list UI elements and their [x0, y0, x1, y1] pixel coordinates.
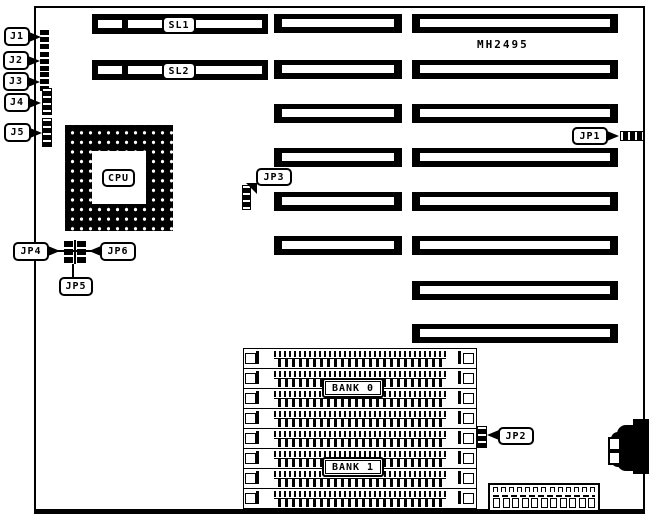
keyboard-connector-notch-1: [608, 437, 621, 451]
jumper-label-j4: J4: [4, 93, 30, 112]
power-tab: [566, 487, 571, 492]
jp5-connector-line: [72, 263, 74, 278]
jumper-label-jp5: JP5: [59, 277, 93, 296]
power-tab: [525, 487, 530, 492]
jumper-block-j4: [42, 88, 52, 115]
simm-contacts: [274, 478, 446, 487]
cpu-label: CPU: [102, 169, 135, 187]
simm-contacts: [274, 438, 446, 447]
simm-clip-left-square: [245, 433, 256, 444]
simm-clip-right-bar: [458, 411, 461, 424]
slot-strip: [282, 241, 394, 249]
simm-socket-8: [243, 488, 477, 509]
simm-pins: [274, 351, 446, 357]
slot-strip: [420, 286, 610, 294]
power-connector-tabs: [493, 487, 595, 493]
power-tab: [509, 487, 514, 492]
power-pin: [531, 498, 538, 508]
jumper-block-j1: [40, 30, 49, 49]
slot-label-sl2: SL2: [162, 62, 196, 80]
expansion-slot-right-4: [412, 148, 618, 167]
slot-strip: [282, 19, 394, 27]
power-tab: [550, 487, 555, 492]
pointer-jp3: [246, 183, 257, 194]
power-pin: [550, 498, 557, 508]
simm-clip-right-bar: [458, 351, 461, 364]
simm-clip-left-square: [245, 473, 256, 484]
expansion-slot-middle-1: [274, 14, 402, 33]
expansion-slot-right-3: [412, 104, 618, 123]
jumper-label-j5: J5: [4, 123, 31, 142]
jp456-pins-right: [77, 241, 86, 263]
power-pin: [503, 498, 510, 508]
power-pin: [579, 498, 586, 508]
simm-clip-right-bar: [458, 391, 461, 404]
bank1-label: BANK 1: [322, 457, 384, 477]
power-connector: [488, 483, 600, 512]
jumper-label-jp2: JP2: [498, 427, 534, 445]
jumper-label-jp3: JP3: [256, 168, 292, 186]
power-tab: [582, 487, 587, 492]
slot-strip: [420, 65, 610, 73]
pointer-jp1: [607, 131, 619, 141]
power-pin: [512, 498, 519, 508]
jumper-label-j1: J1: [4, 27, 30, 46]
jumper-label-jp1: JP1: [572, 127, 608, 145]
simm-contacts: [274, 398, 446, 407]
simm-clip-right-square: [463, 373, 474, 384]
expansion-slot-middle-2: [274, 60, 402, 79]
expansion-slot-middle-6: [274, 236, 402, 255]
pointer-jp4: [48, 246, 60, 256]
jp456-cross-h: [63, 250, 87, 252]
jumper-block-jp1: [620, 131, 644, 141]
simm-clip-right-bar: [458, 371, 461, 384]
slot-sl1-key: [122, 20, 128, 28]
slot-strip: [420, 19, 610, 27]
simm-clip-left-bar: [256, 411, 259, 424]
simm-clip-right-square: [463, 393, 474, 404]
jumper-block-jp2: [477, 426, 487, 448]
simm-pins: [274, 431, 446, 437]
power-tab: [533, 487, 538, 492]
simm-clip-left-square: [245, 493, 256, 504]
pointer-j2: [28, 56, 40, 66]
simm-clip-right-bar: [458, 491, 461, 504]
expansion-slot-right-8: [412, 324, 618, 343]
power-pin: [560, 498, 567, 508]
jumper-block-j5: [42, 118, 52, 147]
jumper-label-jp6: JP6: [100, 242, 136, 261]
simm-clip-left-square: [245, 373, 256, 384]
simm-clip-right-bar: [458, 431, 461, 444]
power-pin: [493, 498, 500, 508]
simm-clip-left-bar: [256, 391, 259, 404]
simm-clip-left-bar: [256, 431, 259, 444]
simm-clip-right-square: [463, 453, 474, 464]
simm-clip-left-bar: [256, 371, 259, 384]
jumper-label-jp4: JP4: [13, 242, 49, 261]
power-connector-pins: [493, 498, 595, 509]
simm-socket-4: [243, 408, 477, 429]
pointer-j1: [29, 32, 41, 42]
slot-strip: [420, 241, 610, 249]
slot-strip: [420, 329, 610, 337]
simm-clip-left-bar: [256, 351, 259, 364]
slot-label-sl1: SL1: [162, 16, 196, 34]
power-tab: [574, 487, 579, 492]
bank0-label: BANK 0: [322, 378, 384, 398]
simm-pins: [274, 371, 446, 377]
slot-strip: [420, 109, 610, 117]
simm-pins: [274, 411, 446, 417]
expansion-slot-right-1: [412, 14, 618, 33]
power-pin: [522, 498, 529, 508]
slot-strip: [282, 197, 394, 205]
expansion-slot-right-7: [412, 281, 618, 300]
jumper-label-j3: J3: [3, 72, 29, 91]
simm-clip-right-bar: [458, 451, 461, 464]
jp456-pins-left: [64, 241, 73, 263]
power-pin: [588, 498, 595, 508]
jumper-block-j2: [40, 52, 49, 71]
simm-clip-left-bar: [256, 471, 259, 484]
simm-contacts: [274, 358, 446, 367]
simm-clip-right-square: [463, 493, 474, 504]
slot-strip: [282, 65, 394, 73]
slot-strip: [282, 109, 394, 117]
simm-clip-right-square: [463, 353, 474, 364]
slot-sl2-key: [122, 66, 128, 74]
power-tab: [501, 487, 506, 492]
jp456-cross-v: [74, 240, 76, 264]
power-pin: [541, 498, 548, 508]
pointer-j3: [28, 77, 40, 87]
simm-clip-left-square: [245, 353, 256, 364]
part-number-text: MH2495: [477, 38, 529, 51]
simm-clip-right-square: [463, 433, 474, 444]
power-tab: [590, 487, 595, 492]
pointer-j4: [29, 98, 41, 108]
power-tab: [541, 487, 546, 492]
jumper-label-j2: J2: [3, 51, 29, 70]
simm-clip-right-square: [463, 413, 474, 424]
simm-clip-left-bar: [256, 491, 259, 504]
expansion-slot-right-6: [412, 236, 618, 255]
simm-clip-right-square: [463, 473, 474, 484]
motherboard-diagram: MH2495 J1 J2 J3 J4 J5 SL1 SL2 CPU JP1 JP…: [0, 0, 650, 520]
power-tab: [493, 487, 498, 492]
simm-clip-left-square: [245, 393, 256, 404]
power-pin: [569, 498, 576, 508]
keyboard-connector-notch-2: [608, 451, 621, 465]
simm-clip-left-bar: [256, 451, 259, 464]
simm-contacts: [274, 498, 446, 507]
expansion-slot-right-2: [412, 60, 618, 79]
power-tab: [517, 487, 522, 492]
slot-strip: [420, 153, 610, 161]
slot-strip: [282, 153, 394, 161]
expansion-slot-middle-5: [274, 192, 402, 211]
expansion-slot-right-5: [412, 192, 618, 211]
simm-pins: [274, 491, 446, 497]
expansion-slot-middle-3: [274, 104, 402, 123]
jumper-block-jp456: [63, 240, 87, 264]
power-connector-divider: [493, 495, 595, 497]
power-tab: [558, 487, 563, 492]
simm-clip-right-bar: [458, 471, 461, 484]
simm-clip-left-square: [245, 413, 256, 424]
expansion-slot-middle-4: [274, 148, 402, 167]
simm-clip-left-square: [245, 453, 256, 464]
simm-socket-1: [243, 348, 477, 369]
pointer-j5: [30, 128, 42, 138]
slot-strip: [420, 197, 610, 205]
simm-contacts: [274, 418, 446, 427]
simm-socket-5: [243, 428, 477, 449]
